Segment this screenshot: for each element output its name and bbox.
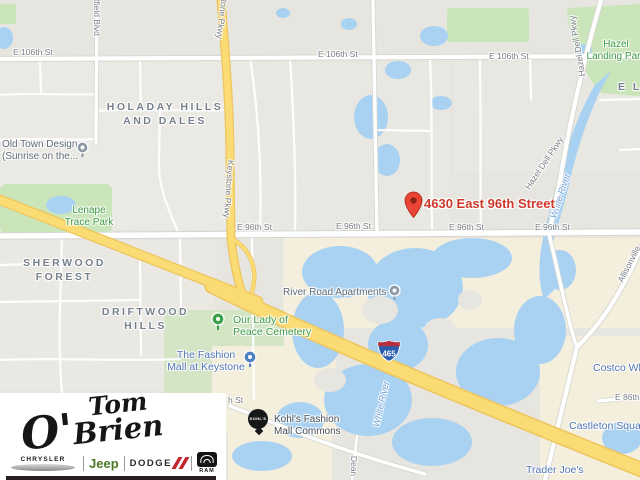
street-label-e106-1: E 106th St <box>13 47 53 57</box>
map-canvas[interactable]: E 106th St E 106th St E 106th St E 96th … <box>0 0 640 480</box>
brand-logo-row: CHRYSLER Jeep DODGE RAM <box>8 452 220 474</box>
poi-kohls-line2: Mall Commons <box>274 426 341 438</box>
poi-river-road-label: River Road Apartments <box>283 287 386 299</box>
poi-castleton-label: Castleton Squa <box>569 420 640 432</box>
poi-old-town-line2: (Sunrise on the... <box>2 151 78 163</box>
neighborhood-holaday-line2: AND DALES <box>105 114 225 128</box>
brand-divider <box>191 456 192 471</box>
jeep-wordmark: Jeep <box>89 456 119 471</box>
street-label-e96-2: E 96th St <box>336 221 371 231</box>
street-label-e86: E 86th St <box>615 392 640 402</box>
poi-fashion-mall-line2: Mall at Keystone <box>165 361 247 373</box>
neighborhood-holaday-line1: HOLADAY HILLS <box>105 100 225 114</box>
dodge-wordmark: DODGE <box>130 458 172 469</box>
poi-kohls-label: Kohl's Fashion Mall Commons <box>274 414 341 438</box>
poi-fashion-mall-line1: The Fashion <box>165 349 247 361</box>
poi-cemetery-line2: Peace Cemetery <box>233 326 311 338</box>
street-label-e96-3: E 96th St <box>449 222 484 232</box>
neighborhood-driftwood-line2: HILLS <box>98 319 193 333</box>
road-label-dean: Dean <box>349 456 359 476</box>
park-label-hazel-landing: Hazel Landing Park <box>586 39 640 62</box>
interstate-465-shield-icon: 465 <box>377 340 401 362</box>
cemetery-pin-icon[interactable] <box>211 312 225 331</box>
neighborhood-sherwood-line1: SHERWOOD <box>12 256 117 270</box>
poi-cemetery-line1: Our Lady of <box>233 314 311 326</box>
fashion-mall-pin-icon[interactable] <box>243 350 257 368</box>
interstate-465-number: 465 <box>382 350 396 359</box>
poi-cemetery-label: Our Lady of Peace Cemetery <box>233 314 311 338</box>
street-label-e106-2: E 106th St <box>318 49 358 59</box>
park-lenape-line2: Trace Park <box>55 217 123 229</box>
poi-old-town-line1: Old Town Design <box>2 139 78 151</box>
road-label-westfield: Westfield Blvd <box>92 0 102 36</box>
neighborhood-sherwood-forest: SHERWOOD FOREST <box>12 256 117 284</box>
neighborhood-driftwood-hills: DRIFTWOOD HILLS <box>98 305 193 333</box>
poi-kohls-line1: Kohl's Fashion <box>274 414 341 426</box>
neighborhood-driftwood-line1: DRIFTWOOD <box>98 305 193 319</box>
logo-bottom-strip <box>6 476 216 480</box>
poi-old-town-design: Old Town Design (Sunrise on the... <box>2 139 78 162</box>
dealer-logo-box: Tom O'Brien CHRYSLER Jeep DODGE <box>0 393 226 480</box>
street-label-e106-3: E 106th St <box>489 51 529 61</box>
street-label-e96-1: E 96th St <box>237 222 272 232</box>
ram-wordmark: RAM <box>199 468 215 474</box>
street-label-e96-4: E 96th St <box>535 222 570 232</box>
ram-shield-icon <box>197 452 217 467</box>
poi-costco-label: Costco Wh <box>593 362 640 374</box>
street-label-partial: h St <box>228 395 243 405</box>
park-hazel-line1: Hazel <box>586 39 640 51</box>
ram-logo: RAM <box>197 452 217 474</box>
poi-trader-joes-label: Trader Joe's <box>526 464 584 476</box>
chrysler-wordmark: CHRYSLER <box>20 456 65 463</box>
park-lenape-line1: Lenape <box>55 205 123 217</box>
brand-divider <box>83 456 84 471</box>
old-town-pin-icon[interactable] <box>76 141 89 158</box>
poi-fashion-mall-label: The Fashion Mall at Keystone <box>165 349 247 373</box>
river-road-pin-icon[interactable] <box>388 284 401 301</box>
park-label-lenape: Lenape Trace Park <box>55 205 123 228</box>
dealer-script-logo: Tom O'Brien <box>6 383 222 455</box>
neighborhood-sherwood-line2: FOREST <box>12 270 117 284</box>
neighborhood-partial-el: E L <box>618 80 640 94</box>
chrysler-wing-icon <box>11 464 75 471</box>
chrysler-logo: CHRYSLER <box>8 456 78 471</box>
destination-address-label: 4630 East 96th Street <box>424 196 555 211</box>
brand-divider <box>124 456 125 471</box>
neighborhood-holaday-hills: HOLADAY HILLS AND DALES <box>105 100 225 128</box>
park-hazel-line2: Landing Park <box>586 51 640 63</box>
dodge-logo: DODGE <box>130 457 186 469</box>
destination-marker-icon[interactable] <box>404 191 423 219</box>
